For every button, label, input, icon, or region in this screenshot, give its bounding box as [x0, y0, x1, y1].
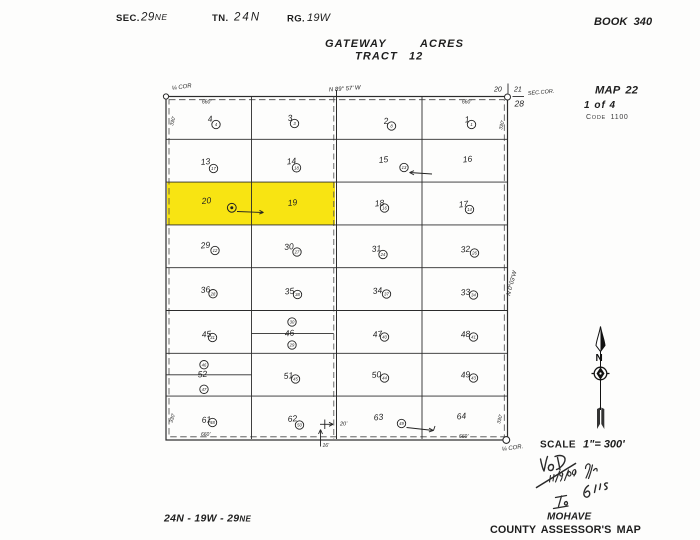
- svg-text:30: 30: [290, 320, 295, 325]
- svg-text:16: 16: [382, 206, 387, 211]
- svg-text:41: 41: [471, 335, 476, 340]
- svg-text:52: 52: [197, 369, 208, 380]
- svg-text:24N - 19W - 29NE: 24N - 19W - 29NE: [163, 513, 251, 525]
- svg-text:GATEWAY: GATEWAY: [325, 38, 387, 50]
- svg-text:TN.: TN.: [212, 13, 229, 24]
- svg-text:13: 13: [402, 165, 407, 170]
- svg-text:38: 38: [295, 292, 300, 297]
- svg-text:BOOK 340: BOOK 340: [594, 16, 653, 28]
- svg-text:1"= 300': 1"= 300': [583, 439, 625, 451]
- svg-text:20’: 20’: [339, 422, 348, 428]
- svg-text:N: N: [596, 353, 603, 364]
- svg-text:13: 13: [200, 156, 211, 167]
- svg-text:TRACT 12: TRACT 12: [355, 51, 423, 63]
- svg-text:64: 64: [456, 411, 467, 422]
- svg-text:660’: 660’: [202, 100, 212, 106]
- svg-text:34: 34: [372, 285, 383, 296]
- svg-text:31: 31: [210, 335, 215, 340]
- svg-text:49: 49: [399, 421, 404, 426]
- svg-text:MOHAVE: MOHAVE: [547, 512, 591, 523]
- svg-text:1: 1: [470, 122, 472, 127]
- svg-text:SCALE: SCALE: [540, 440, 576, 451]
- svg-text:37: 37: [384, 292, 389, 297]
- svg-text:18: 18: [294, 165, 299, 170]
- svg-text:660’: 660’: [462, 100, 472, 106]
- svg-text:32: 32: [460, 244, 471, 255]
- svg-text:28: 28: [210, 291, 216, 296]
- svg-text:660’: 660’: [459, 434, 469, 440]
- svg-text:46: 46: [202, 362, 207, 367]
- svg-text:63: 63: [373, 412, 384, 423]
- svg-text:15: 15: [378, 154, 389, 165]
- svg-text:29: 29: [199, 240, 211, 251]
- svg-text:27: 27: [294, 250, 300, 255]
- svg-text:19: 19: [287, 197, 298, 208]
- svg-text:COUNTY ASSESSOR'S MAP: COUNTY ASSESSOR'S MAP: [490, 524, 641, 536]
- svg-text:50: 50: [297, 423, 302, 428]
- svg-text:28: 28: [514, 99, 525, 109]
- svg-text:20: 20: [200, 195, 212, 206]
- svg-text:44: 44: [382, 376, 387, 381]
- svg-text:20: 20: [493, 87, 502, 94]
- svg-text:17: 17: [211, 166, 216, 171]
- svg-text:24: 24: [380, 252, 386, 257]
- svg-text:47: 47: [202, 387, 207, 392]
- svg-text:45: 45: [293, 377, 298, 382]
- svg-text:26: 26: [471, 251, 477, 256]
- svg-text:RG.: RG.: [287, 14, 305, 25]
- svg-text:46: 46: [284, 328, 295, 339]
- svg-text:24N: 24N: [233, 12, 261, 24]
- svg-text:19W: 19W: [307, 12, 332, 24]
- svg-text:1 of 4: 1 of 4: [584, 100, 616, 111]
- svg-text:36: 36: [200, 284, 211, 295]
- svg-text:21: 21: [513, 87, 522, 94]
- svg-text:40: 40: [382, 335, 387, 340]
- svg-text:12: 12: [213, 248, 218, 253]
- svg-text:CODE 1100: CODE 1100: [586, 114, 629, 121]
- svg-text:29: 29: [289, 343, 295, 348]
- svg-text:16’: 16’: [323, 443, 331, 449]
- svg-text:ACRES: ACRES: [419, 38, 464, 50]
- svg-text:34: 34: [471, 293, 476, 298]
- svg-text:43: 43: [471, 376, 476, 381]
- svg-text:29NE: 29NE: [140, 12, 168, 24]
- svg-text:48: 48: [210, 420, 215, 425]
- svg-text:14: 14: [467, 207, 472, 212]
- svg-text:SEC.: SEC.: [116, 13, 140, 24]
- svg-text:16: 16: [462, 154, 473, 165]
- svg-text:MAP 22: MAP 22: [595, 85, 639, 97]
- svg-text:660’: 660’: [201, 432, 211, 438]
